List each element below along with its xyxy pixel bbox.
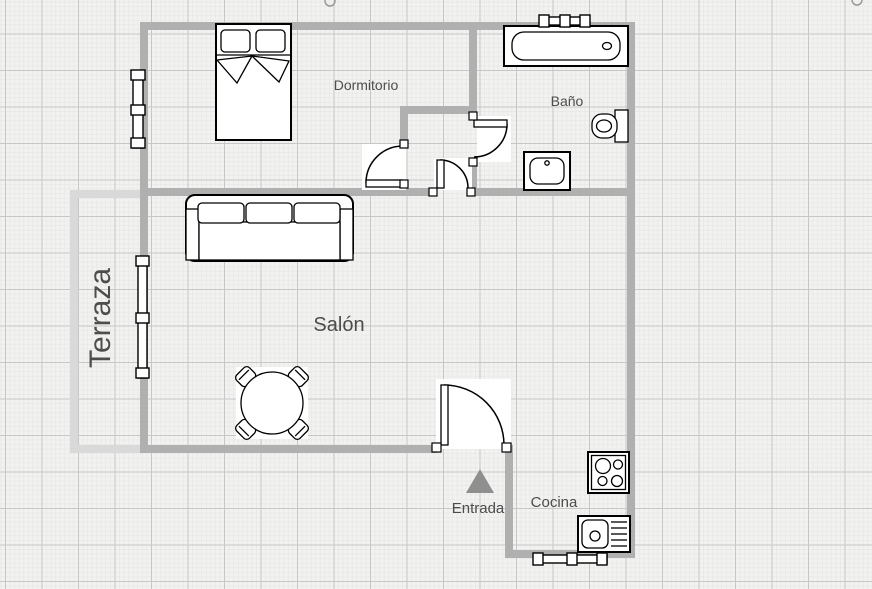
clipped-glyph-artifact: [852, 0, 862, 5]
label-cocina[interactable]: Cocina: [531, 494, 578, 511]
floorplan-canvas[interactable]: Dormitorio Baño Salón Terraza Entrada Co…: [0, 0, 872, 589]
window-terrace-icon[interactable]: [136, 256, 149, 378]
label-entrada[interactable]: Entrada: [452, 500, 505, 517]
bathroom-sink-icon[interactable]: [524, 152, 570, 190]
double-bed-icon[interactable]: [216, 24, 291, 140]
sofa-icon[interactable]: [186, 195, 353, 261]
label-dormitorio[interactable]: Dormitorio: [334, 77, 399, 93]
label-salon[interactable]: Salón: [313, 314, 364, 336]
dining-table-icon[interactable]: [234, 365, 310, 441]
floorplan-drawing: Dormitorio Baño Salón Terraza Entrada Co…: [0, 0, 872, 589]
window-bedroom-icon[interactable]: [131, 70, 145, 148]
label-terraza[interactable]: Terraza: [84, 268, 117, 368]
label-bano[interactable]: Baño: [551, 93, 584, 109]
toilet-icon[interactable]: [592, 110, 628, 142]
kitchen-sink-icon[interactable]: [578, 516, 630, 552]
clipped-glyph-artifact: [325, 0, 335, 6]
window-bathroom-icon[interactable]: [539, 15, 590, 27]
entrance-arrow-icon[interactable]: [466, 469, 494, 493]
bathtub-icon[interactable]: [504, 26, 628, 66]
stove-icon[interactable]: [588, 452, 629, 493]
window-kitchen-icon[interactable]: [533, 553, 607, 565]
